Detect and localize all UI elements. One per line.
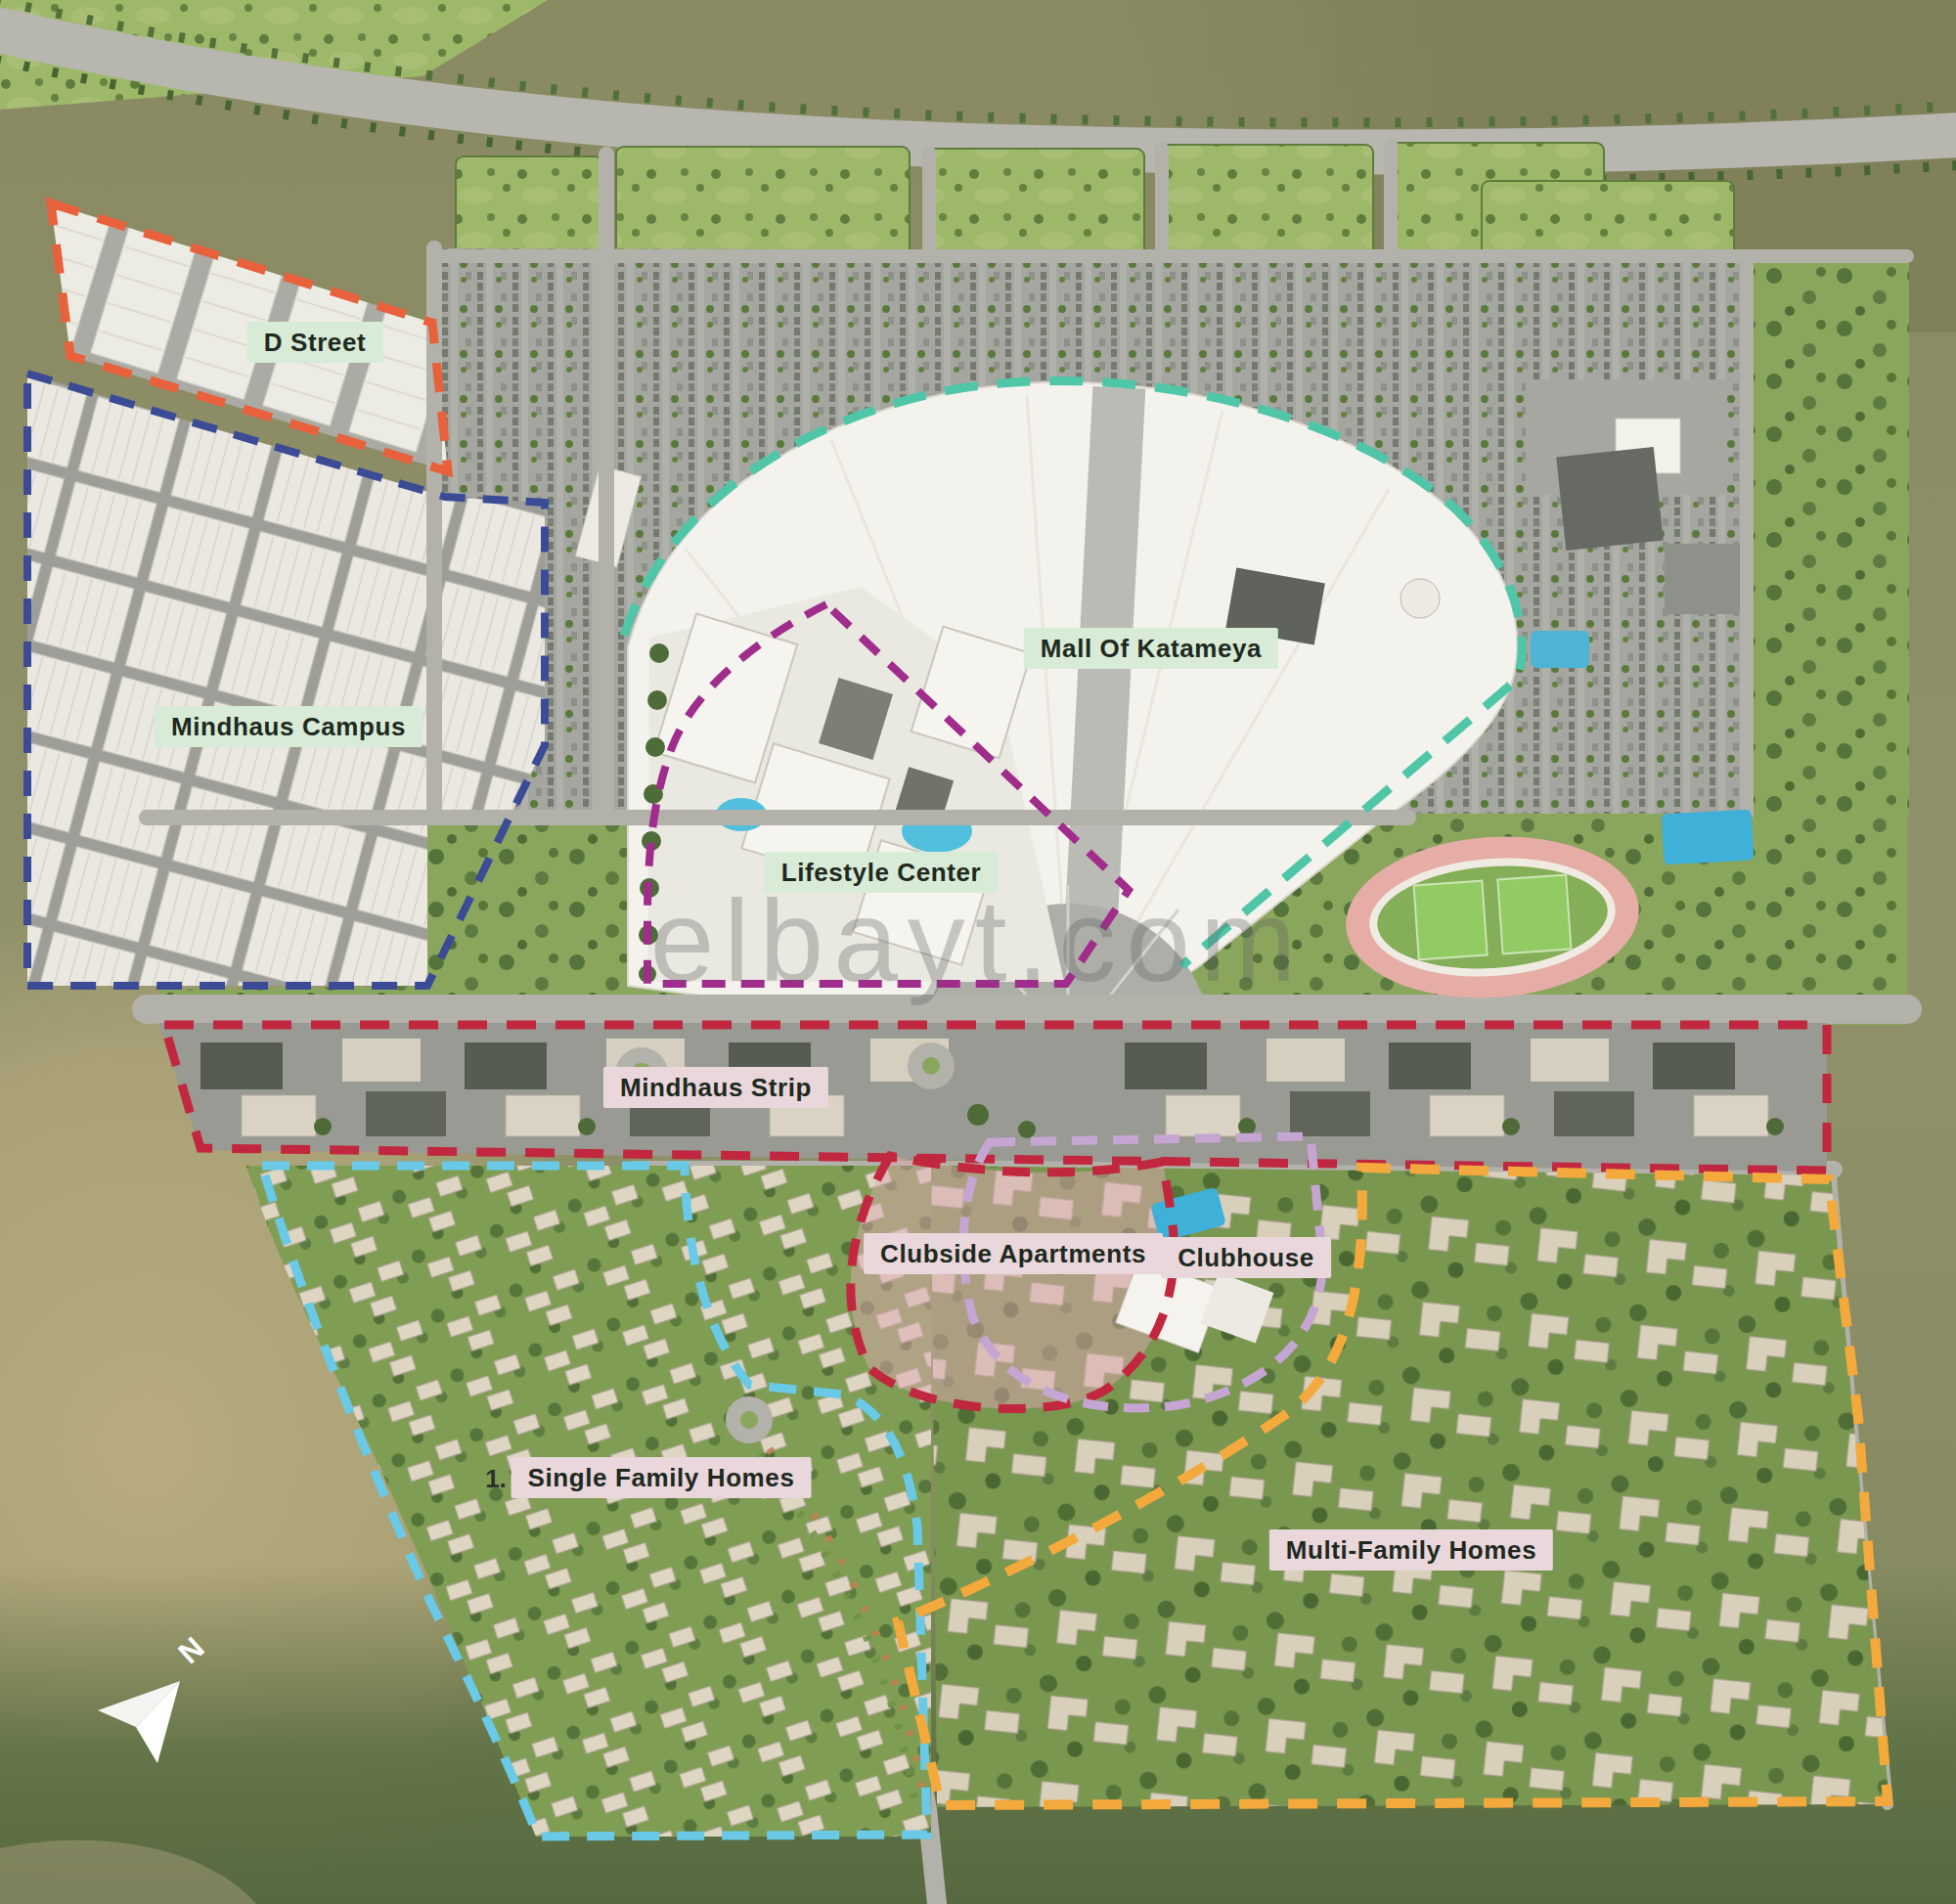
- zone-label-mall-of-katameya: Mall Of Katameya: [1024, 628, 1278, 669]
- pitch: [1414, 881, 1488, 960]
- area-number-note: 1.: [485, 1464, 507, 1494]
- pitch: [1497, 875, 1571, 954]
- pool: [1662, 810, 1755, 865]
- zone-label-mindhaus-strip: Mindhaus Strip: [603, 1067, 828, 1108]
- east-park-strip: [1753, 256, 1909, 816]
- zone-label-mindhaus-campus: Mindhaus Campus: [155, 706, 422, 747]
- watermark: elbayt.com: [650, 874, 1307, 1007]
- zone-label-d-street: D Street: [247, 322, 383, 363]
- zone-label-clubhouse: Clubhouse: [1161, 1237, 1331, 1278]
- zone-label-clubside-apartments: Clubside Apartments: [864, 1233, 1163, 1274]
- zone-label-multi-family-homes: Multi-Family Homes: [1269, 1529, 1553, 1571]
- master-plan-map: elbayt.com D Street Mindhaus Campus Mall…: [0, 0, 1956, 1904]
- dome-plaza: [1400, 579, 1440, 618]
- pool: [1531, 631, 1589, 668]
- zone-label-lifestyle-center: Lifestyle Center: [765, 852, 999, 893]
- zone-label-single-family-homes: Single Family Homes: [511, 1457, 812, 1498]
